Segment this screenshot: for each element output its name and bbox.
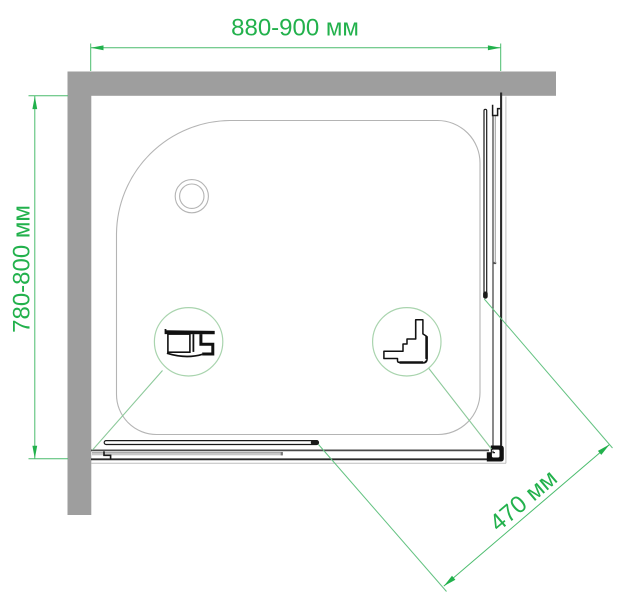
- svg-text:780-800 мм: 780-800 мм: [9, 205, 36, 333]
- svg-text:880-900 мм: 880-900 мм: [231, 15, 359, 42]
- svg-text:470 мм: 470 мм: [485, 465, 563, 537]
